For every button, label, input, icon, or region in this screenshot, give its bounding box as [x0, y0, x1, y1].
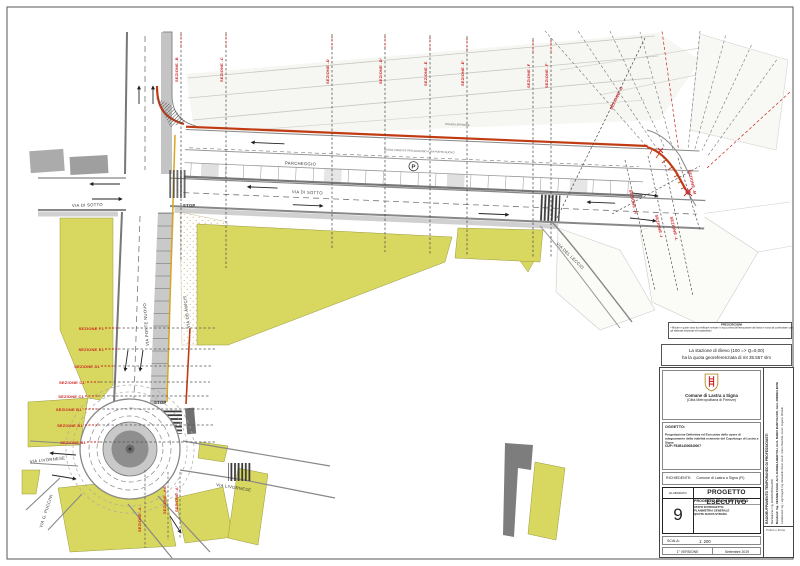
team-strip: RAGGRUPPAMENTO TEMPORANEO DI PROFESSIONI… — [763, 368, 794, 526]
scale-label: SCALA: — [667, 539, 680, 543]
commune-subtitle: (Città Metropolitana di Firenze) — [663, 398, 760, 402]
section-label: SEZIONE C1 — [58, 394, 84, 399]
section-label: SEZIONE E1 — [78, 347, 104, 352]
section-label: SEZIONE -B — [174, 57, 179, 82]
via-livornese-west-label: VIA LIVORNESE — [30, 455, 66, 464]
junction-island-hatch — [169, 170, 187, 198]
buildings-northwest — [29, 149, 108, 175]
cup-code: CUP: F81B14000840007 — [665, 444, 758, 448]
subject-box: OGGETTO: Progettazione Definitiva ed Ese… — [662, 422, 761, 470]
stamp-signature-cell: Timbro e Firma — [763, 526, 793, 557]
svg-text:P: P — [411, 164, 415, 170]
team-title: RAGGRUPPAMENTO TEMPORANEO DI PROFESSIONI… — [765, 370, 769, 524]
project-box: ELABORATO PROGETTO ESECUTIVO 9 PROGETTO … — [662, 487, 761, 534]
applicant-row: RICHIEDENTE: Comune di Lastra a Signa (F… — [662, 472, 761, 485]
project-state-line3: QUOTE NUOVA STRADA — [694, 513, 759, 516]
stop-junction-label: STOP — [183, 203, 196, 208]
station-note-line1: La stazione di rilievo (100 => Q=0,00) — [662, 345, 791, 356]
survey-station-note: La stazione di rilievo (100 => Q=0,00) h… — [661, 344, 792, 366]
prescriptions-note: PRESCRIZIONI • Misure e quote sono da ve… — [668, 322, 792, 339]
stamp-signature-label: Timbro e Firma — [766, 528, 785, 532]
section-label: SEZIONE -AA — [162, 486, 167, 514]
stop-roundabout-label: STOP — [154, 400, 167, 405]
section-label: SEZIONE -A — [137, 507, 142, 532]
section-label: SEZIONE F1 — [79, 326, 105, 331]
applicant-value: Comune di Lastra a Signa (FI) — [696, 476, 744, 480]
team-collaborators: Collaboratori: Ing. Luigi Dragotti, Ing.… — [781, 370, 784, 524]
drawing-sheet: NUOVA VIABILITA' PER ACCESSO A VIA PONTE… — [0, 0, 800, 566]
section-label: SEZIONE D1 — [74, 364, 100, 369]
version-date: Settembre 2019 — [712, 548, 762, 554]
section-label: SEZIONE B1' — [57, 423, 84, 428]
drawing-number: 9 — [663, 498, 694, 533]
section-label: SEZIONE -E — [423, 61, 428, 86]
section-label: SEZIONE -D' — [378, 58, 383, 84]
section-label: SEZIONE -F' — [544, 62, 549, 88]
team-lead: Mandataria: Ing. GIANNI BOGLIONI — [770, 370, 774, 524]
section-label: SEZIONE B1'' — [56, 407, 84, 412]
scale-row: SCALA: 1: 200 — [662, 536, 761, 545]
arrow-right-icon — [52, 475, 76, 479]
scale-value: 1: 200 — [699, 539, 711, 544]
section-label: SEZIONE C1' — [59, 380, 86, 385]
subject-label: OGGETTO: — [665, 425, 758, 429]
section-label: SEZIONE -C — [219, 57, 224, 82]
station-note-line2: ha la quota georeferenziata di mt 35.557… — [662, 356, 791, 361]
project-title: PROGETTO ESECUTIVO — [693, 488, 760, 498]
dark-building — [503, 443, 533, 537]
version-label: 1° VERSIONE — [663, 548, 713, 554]
prescriptions-text: • Misure e quote sono da verificare semp… — [671, 327, 793, 333]
subject-text: Progettazione Definitiva ed Esecutiva de… — [665, 433, 760, 445]
section-label: SEZIONE -A' — [174, 486, 179, 512]
via-g-puccini-label: VIA G. PUCCINI — [38, 494, 53, 529]
elaborato-label: ELABORATO — [663, 488, 694, 498]
section-label: SEZIONE -E' — [460, 60, 465, 86]
title-block: Comune di Lastra a Signa (Città Metropol… — [659, 367, 794, 558]
terrain-north — [186, 33, 720, 138]
section-label: SEZIONE -F — [526, 63, 531, 88]
section-label: SEZIONE B1 — [60, 440, 86, 445]
building-blocks — [22, 218, 565, 552]
parking-p-icon: P — [409, 161, 419, 171]
commune-header: Comune di Lastra a Signa (Città Metropol… — [662, 370, 761, 420]
via-di-sotto-west: VIA DI SOTTO — [38, 178, 170, 217]
team-members: Mandanti: Ing. CESARE FAGGI, Arch. DANIE… — [775, 370, 779, 524]
road-corridor: NUOVA VIABILITA' PER ACCESSO A VIA PONTE… — [166, 126, 707, 235]
version-row: 1° VERSIONE Settembre 2019 — [662, 547, 761, 555]
commune-crest-icon — [704, 373, 719, 392]
project-subtitle: PROGETTO ARCHITETTONICO — [694, 499, 760, 505]
section-label: SEZIONE -D — [325, 59, 330, 84]
crosswalk-livornese — [228, 463, 251, 481]
applicant-label: RICHIEDENTE: — [666, 476, 691, 480]
